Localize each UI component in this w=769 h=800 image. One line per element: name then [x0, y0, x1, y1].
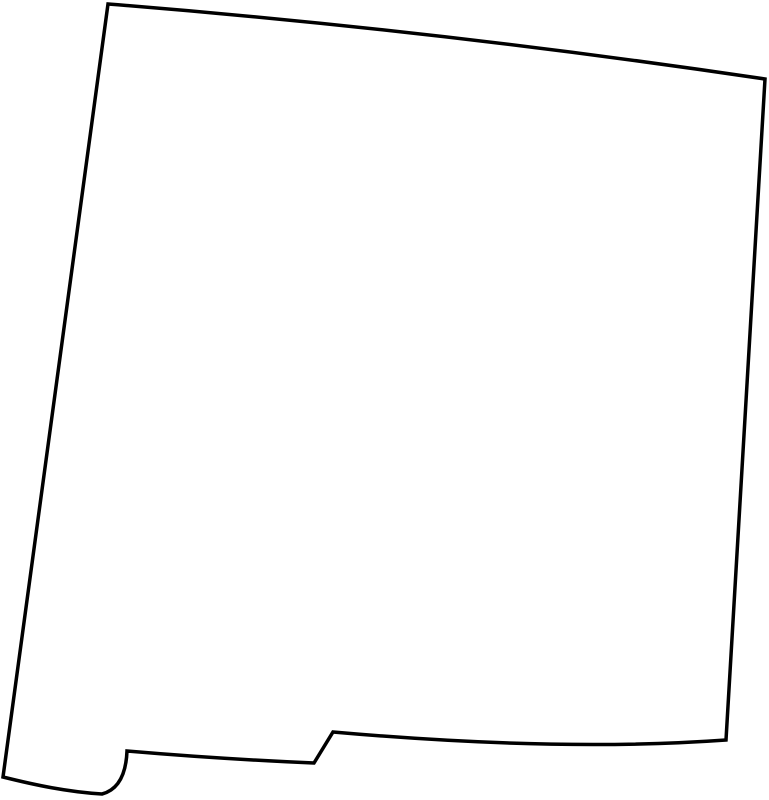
- new-mexico-map: [0, 0, 769, 800]
- map-canvas: [0, 0, 769, 800]
- new-mexico-state-outline: [3, 4, 765, 794]
